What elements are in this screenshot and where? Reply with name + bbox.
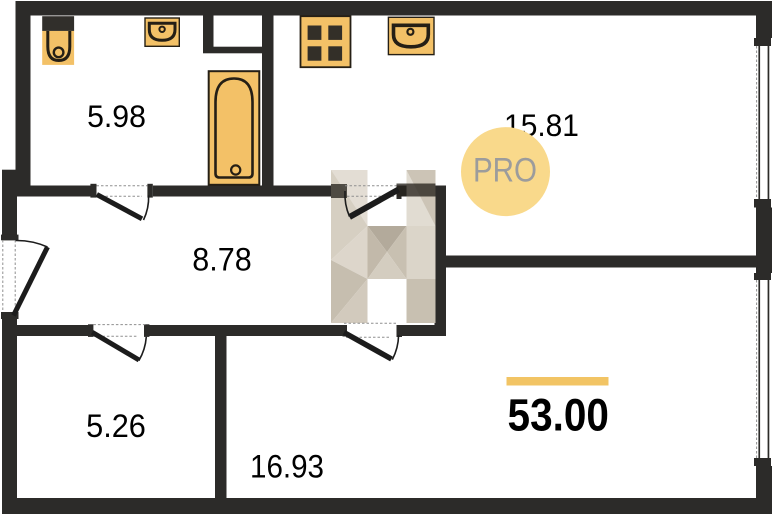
svg-text:53.00: 53.00 bbox=[508, 390, 609, 441]
svg-text:8.78: 8.78 bbox=[192, 241, 251, 278]
svg-text:PRO: PRO bbox=[473, 150, 537, 188]
svg-text:5.98: 5.98 bbox=[87, 99, 146, 135]
svg-text:16.93: 16.93 bbox=[250, 448, 324, 485]
svg-text:5.26: 5.26 bbox=[86, 408, 146, 444]
